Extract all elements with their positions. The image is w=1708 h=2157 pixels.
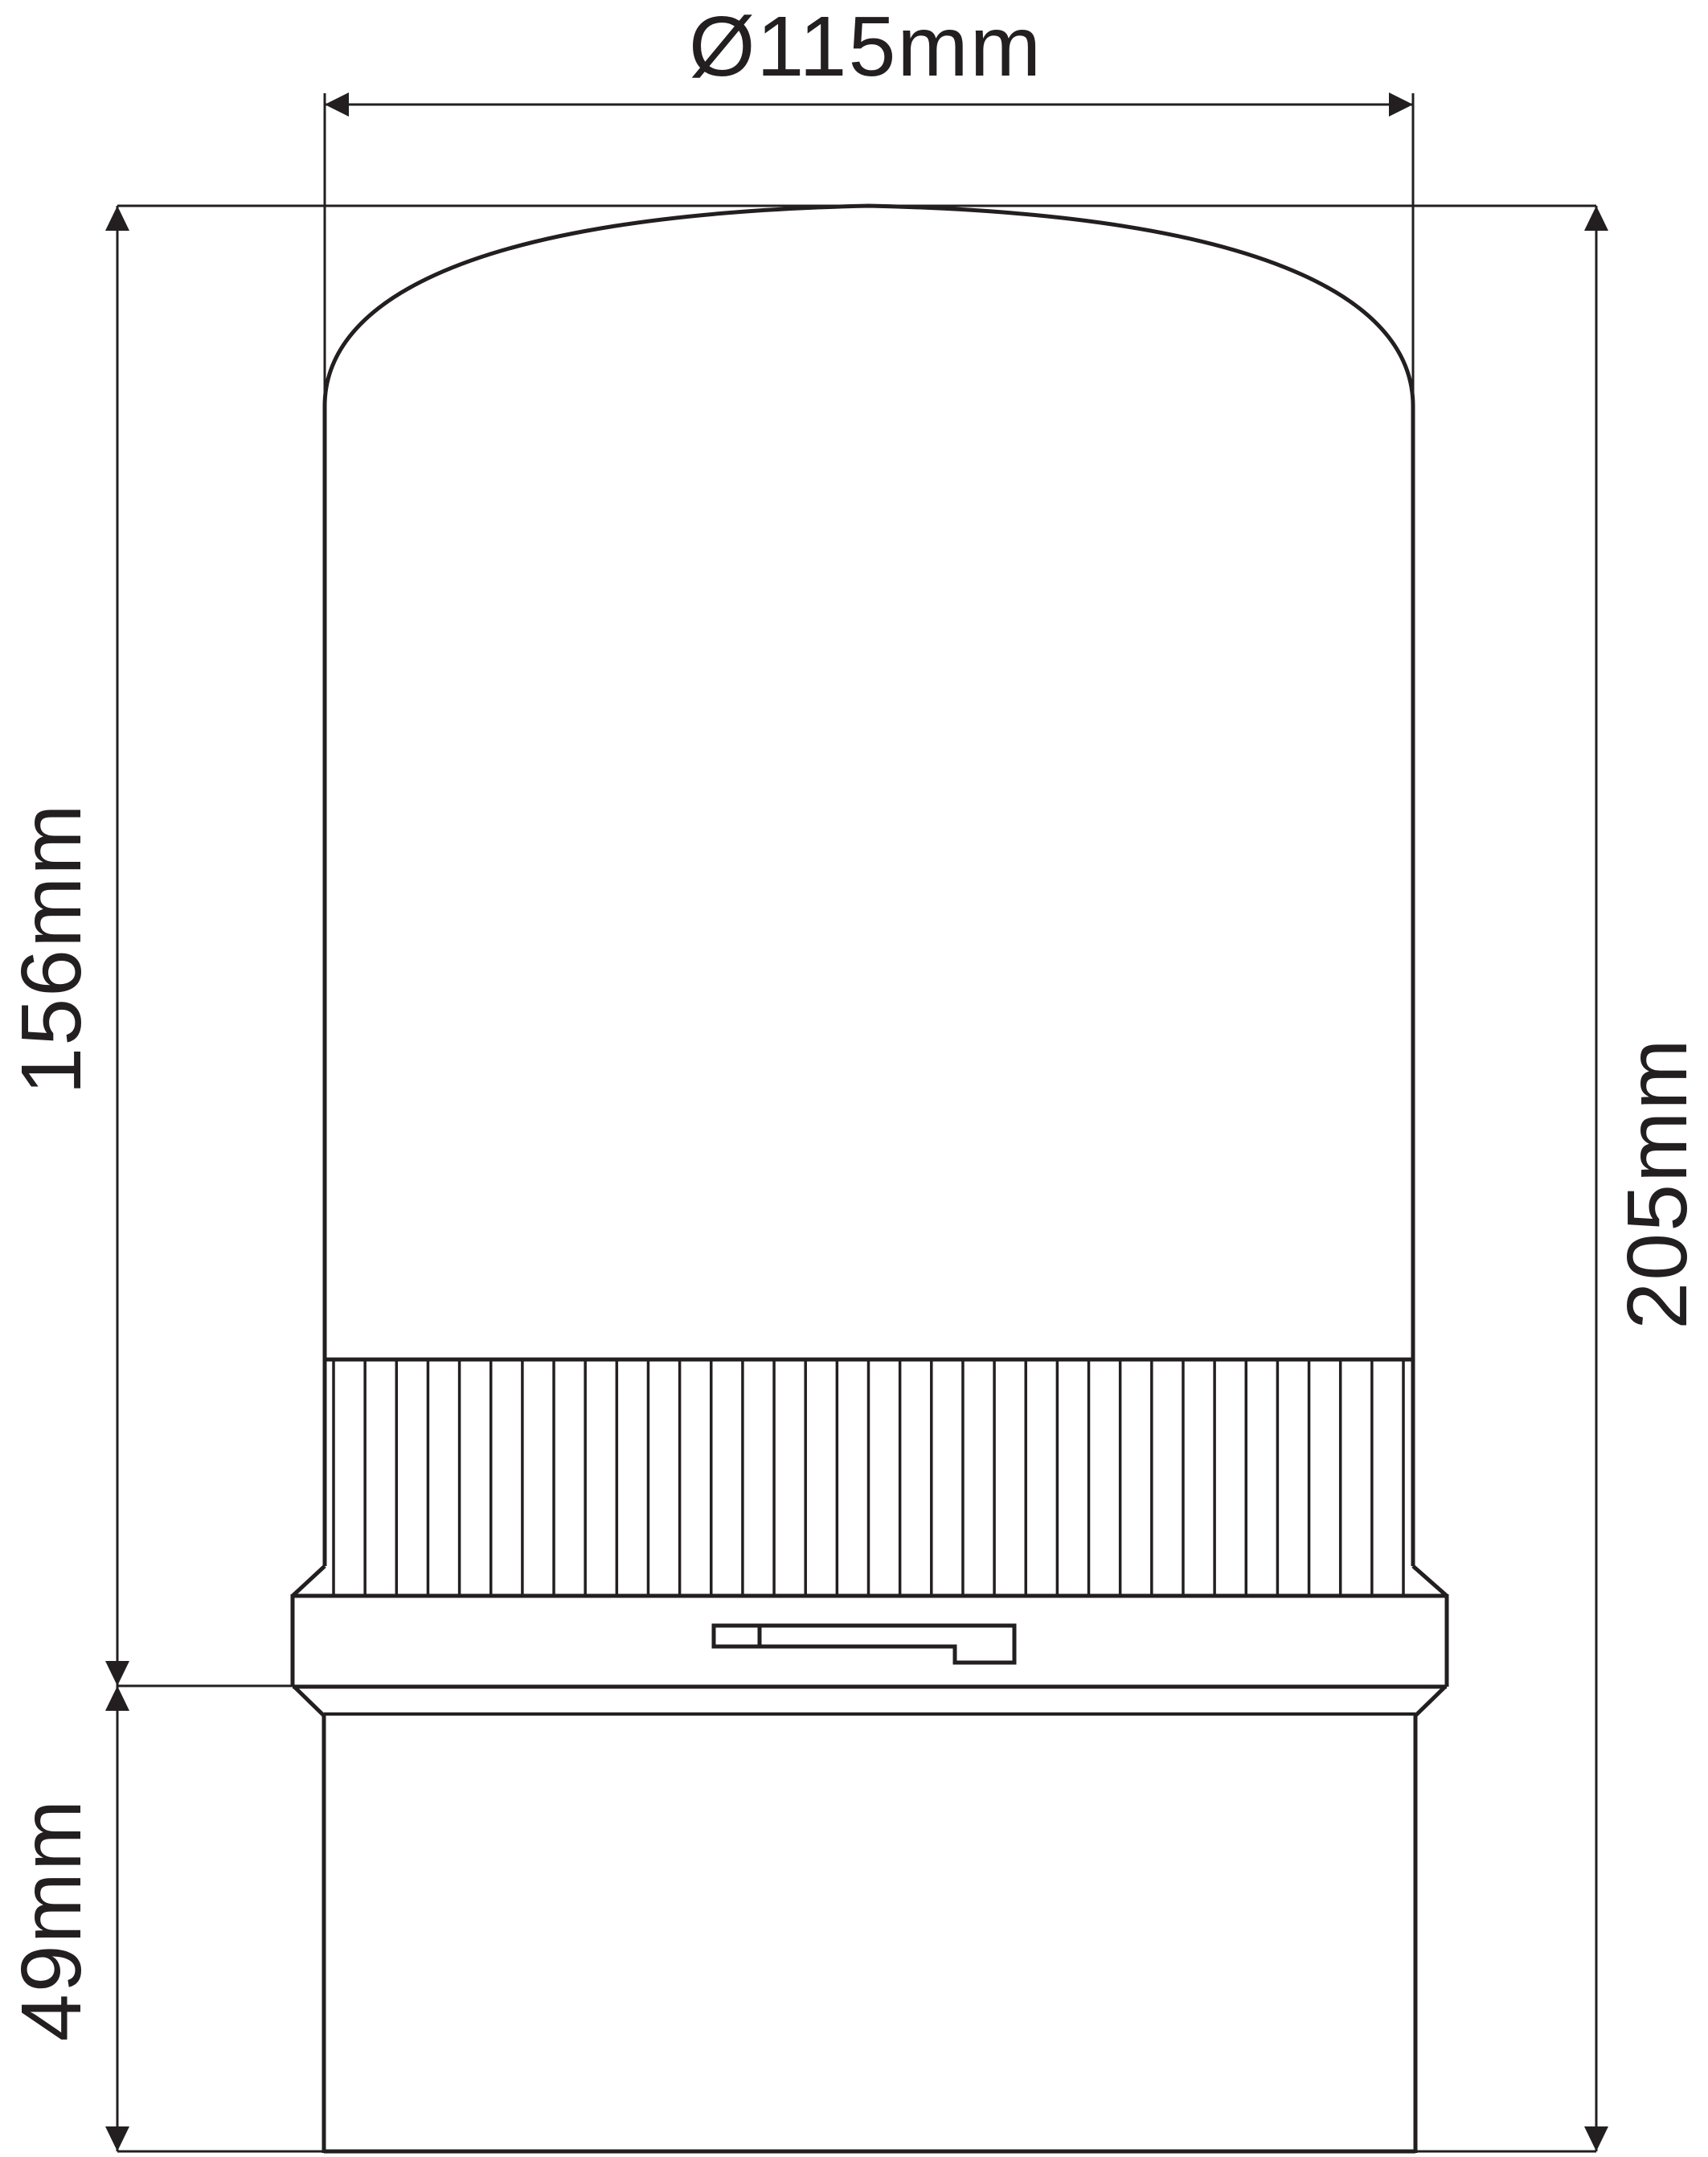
total-height-label: 205mm [1610, 1037, 1705, 1329]
collar-right-chamfer [1415, 1687, 1445, 1716]
diameter-label: Ø115mm [689, 0, 1042, 94]
base-height-label: 49mm [4, 1798, 99, 2042]
dimension-arrowheads [105, 92, 1608, 2151]
dimension-lines [117, 93, 1596, 2151]
rib-lines [334, 1361, 1403, 1594]
right-bottom-arrow-down [1584, 2126, 1608, 2151]
collar-left-chamfer [294, 1687, 324, 1716]
collar-left-bevel [293, 1566, 325, 1596]
left-bottom-arrow-down [105, 2126, 129, 2151]
beacon-dimension-drawing: Ø115mm 156mm 205mm 49mm [0, 0, 1708, 2157]
collar-right-bevel [1413, 1566, 1447, 1596]
diameter-arrow-left [325, 92, 349, 117]
left-mid-arrow-down [105, 1661, 129, 1686]
diameter-arrow-right [1389, 92, 1413, 117]
lens-height-label: 156mm [4, 802, 99, 1094]
beacon-outline [293, 206, 1447, 2153]
left-top-arrow-up [105, 206, 129, 231]
left-mid-arrow-up [105, 1686, 129, 1711]
right-top-arrow-up [1584, 206, 1608, 231]
dimension-labels: Ø115mm 156mm 205mm 49mm [4, 0, 1705, 2041]
technical-drawing-page: Ø115mm 156mm 205mm 49mm [0, 0, 1708, 2157]
